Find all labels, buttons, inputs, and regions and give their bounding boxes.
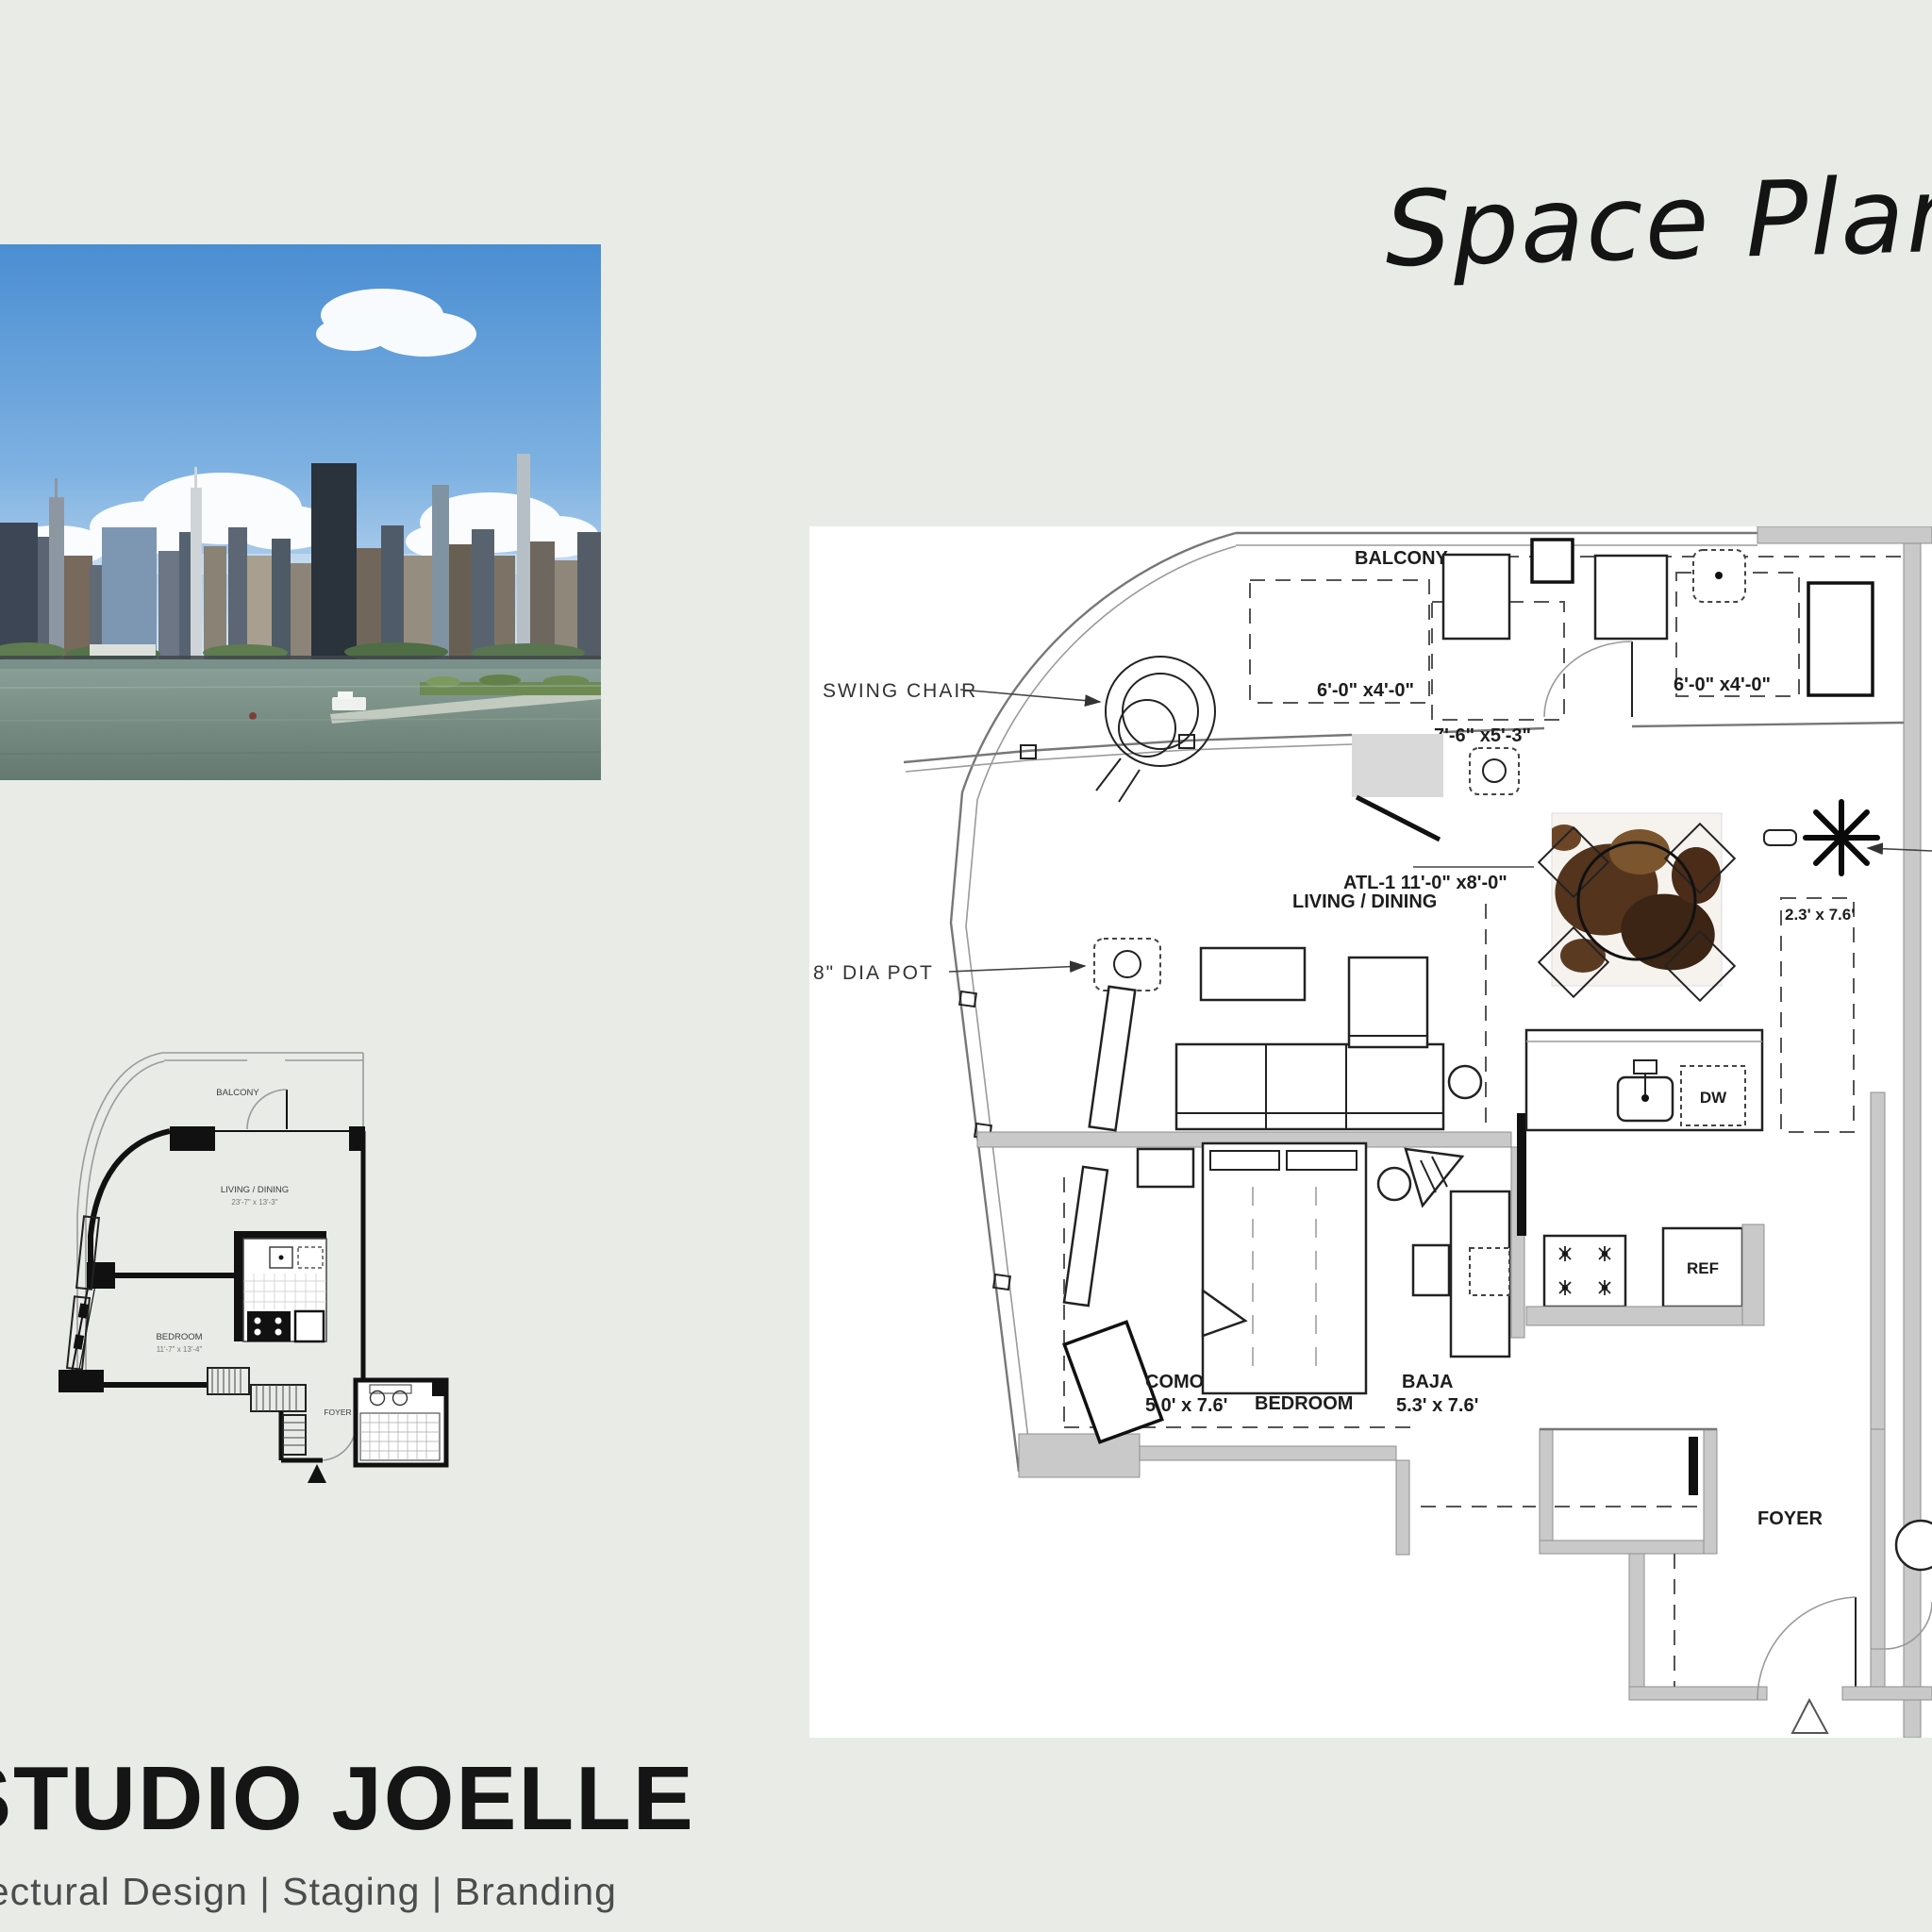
- swing-chair-leader: [960, 690, 1100, 702]
- balcony-rug-mid-dim: 7'-6" x5'-3": [1434, 725, 1531, 746]
- page-title: Space Planning: [1383, 148, 1932, 291]
- como-label: COMO: [1145, 1372, 1204, 1392]
- mini-bedroom-label: BEDROOM: [156, 1332, 202, 1342]
- bed: [1203, 1143, 1366, 1393]
- skyline-photo: [0, 244, 601, 780]
- desk-return: [1413, 1245, 1449, 1295]
- mini-bedroom-dim: 11'-7" x 13'-4": [157, 1345, 203, 1354]
- tv-diagonal: [1357, 797, 1440, 840]
- foyer-label: FOYER: [1757, 1508, 1823, 1529]
- hall-runner: [1781, 898, 1854, 1132]
- bedroom: COMO 5.0' x 7.6' BEDROOM BAJA 5.3' x 7.6…: [1064, 1143, 1509, 1442]
- mini-entry-marker: [308, 1464, 326, 1483]
- closet: [1540, 1429, 1717, 1554]
- slide: Space Planning: [0, 0, 1932, 1932]
- planter-box-1: [1090, 987, 1136, 1130]
- dining-set: [1539, 813, 1735, 1001]
- balcony-rug-right-dim: 6'-0" x4'-0": [1674, 675, 1771, 695]
- furnished-floor-plan: SWING CHAIR BALCONY 6'-0" x4'-0" 7'-6" x…: [809, 526, 1932, 1738]
- mini-kitchen: [234, 1231, 326, 1341]
- mini-balcony-label: BALCONY: [216, 1088, 259, 1098]
- stove: [1544, 1236, 1625, 1307]
- baja-label: BAJA: [1402, 1372, 1453, 1392]
- balcony-label: BALCONY: [1355, 548, 1449, 569]
- swing-chair-label: SWING CHAIR: [823, 680, 977, 702]
- original-floor-plan: BALCONY LIVING / DINING 23'-7" x 13'-3" …: [38, 1038, 528, 1566]
- coffee-table: [1201, 948, 1305, 1000]
- entry-marker: [1792, 1700, 1827, 1733]
- toilet: [1896, 1521, 1932, 1570]
- dia-pot-label: 8" DIA POT: [813, 962, 934, 984]
- dia-pot-leader: [949, 966, 1085, 972]
- mini-stairs: [208, 1368, 356, 1483]
- plant-pot-small: [1470, 748, 1519, 794]
- hall-runner-dim: 2.3' x 7.6': [1785, 906, 1855, 924]
- living-dining-label: LIVING / DINING: [1292, 891, 1437, 912]
- living-rug-label: ATL-1 11'-0" x8'-0": [1343, 873, 1507, 893]
- side-table: [1449, 1066, 1481, 1098]
- dishwasher-label: DW: [1700, 1089, 1727, 1107]
- dia-pot: [1094, 939, 1160, 991]
- mini-living-dim: 23'-7" x 13'-3": [231, 1198, 277, 1207]
- kitchen: DW REF: [1526, 1030, 1764, 1325]
- balcony-rug-left-dim: 6'-0" x4'-0": [1317, 680, 1414, 701]
- baja-dim: 5.3' x 7.6': [1396, 1395, 1478, 1416]
- mini-living-label: LIVING / DINING: [221, 1185, 289, 1195]
- door-mat: [1352, 734, 1443, 797]
- como-dim: 5.0' x 7.6': [1145, 1395, 1227, 1416]
- nightstand: [1138, 1149, 1193, 1187]
- bathroom: [1871, 1429, 1932, 1649]
- foyer: FOYER: [1540, 1429, 1932, 1733]
- floor-plan-panel: SWING CHAIR BALCONY 6'-0" x4'-0" 7'-6" x…: [809, 526, 1932, 1738]
- brand-tagline: Architectural Design | Staging | Brandin…: [0, 1870, 617, 1914]
- desk-chair: [1470, 1248, 1509, 1295]
- brand-name: STUDIO JOELLE: [0, 1747, 695, 1851]
- bedroom-label: BEDROOM: [1255, 1393, 1353, 1414]
- planter-box-2: [1064, 1167, 1108, 1306]
- mini-foyer-label: FOYER: [324, 1407, 351, 1417]
- refrigerator-label: REF: [1687, 1259, 1719, 1277]
- swing-chair: [1096, 657, 1215, 802]
- bedside-table: [1378, 1168, 1410, 1200]
- mini-bathroom: [356, 1380, 446, 1465]
